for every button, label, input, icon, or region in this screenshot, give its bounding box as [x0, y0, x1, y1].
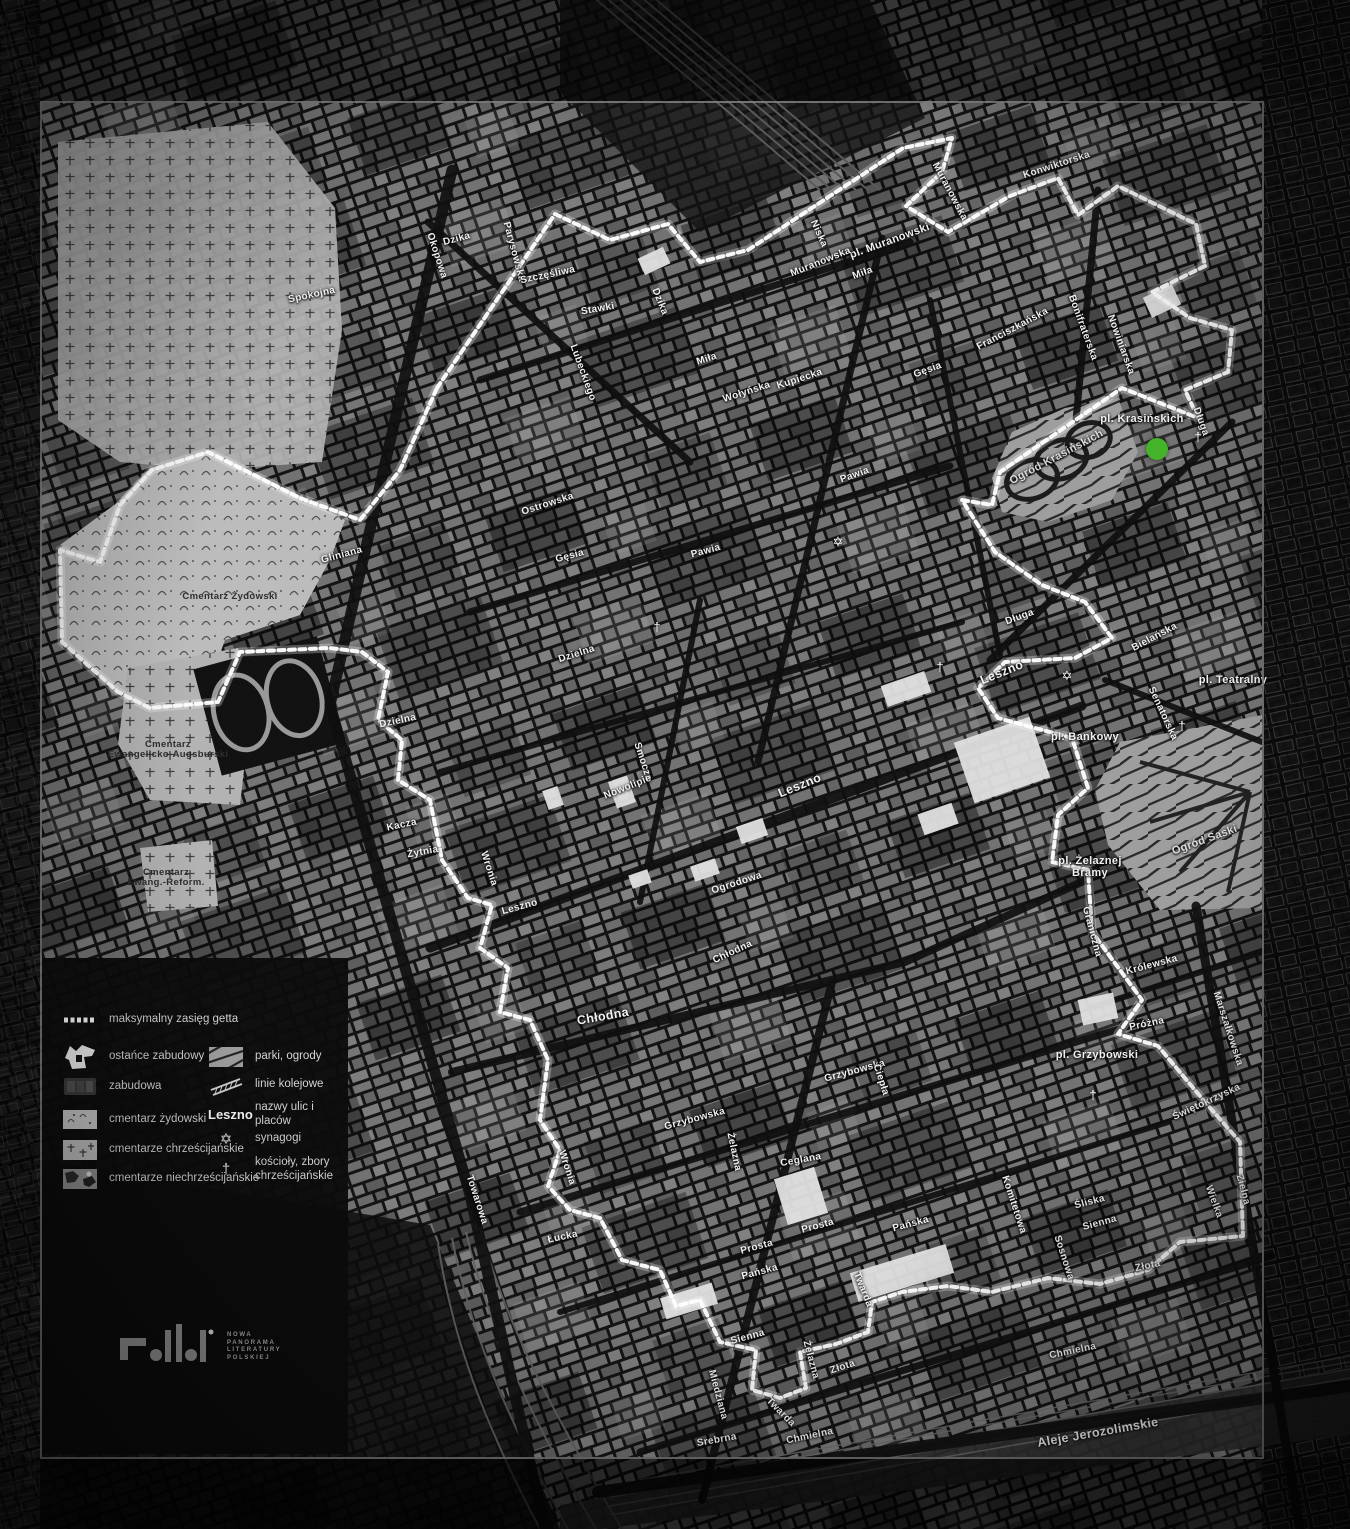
legend-item-railway-lines: linie kolejowe — [208, 1074, 323, 1096]
legend-label: maksymalny zasięg getta — [109, 1013, 238, 1027]
nplp-logo-glyphs — [118, 1324, 214, 1368]
logo-line: PANORAMA — [227, 1340, 281, 1348]
legend-label: linie kolejowe — [255, 1078, 323, 1092]
legend-label: synagogi — [255, 1132, 301, 1146]
legend-item-churches: † kościoły, zbory chrześcijańskie — [208, 1156, 359, 1183]
legend-item-street-names: Leszno nazwy ulic i placów — [208, 1101, 348, 1128]
legend-label: cmentarz żydowski — [109, 1113, 206, 1127]
legend-label: parki, ogrody — [255, 1050, 321, 1064]
map-viewport[interactable]: SpokojnaDzikaOkopowaParysowskaSzczęśliwa… — [0, 0, 1350, 1529]
legend-label: nazwy ulic i placów — [255, 1101, 348, 1128]
buildings-swatch — [62, 1078, 98, 1095]
legend-item-synagogues: ✡ synagogi — [208, 1130, 301, 1148]
legend-panel: maksymalny zasięg getta ostańce zabudowy… — [42, 958, 348, 1454]
legend-item-buildings: zabudowa — [62, 1078, 161, 1095]
church-cross-icon: † — [208, 1161, 244, 1178]
legend-label: kościoły, zbory chrześcijańskie — [255, 1156, 359, 1183]
nplp-logo: NOWA PANORAMA LITERATURY POLSKIEJ — [118, 1324, 281, 1368]
logo-line: LITERATURY — [227, 1347, 281, 1355]
street-name-sample: Leszno — [208, 1107, 244, 1122]
legend-item-parks-gardens: parki, ogrody — [208, 1047, 321, 1067]
legend-label: ostańce zabudowy — [109, 1050, 204, 1064]
jewish-cemetery-swatch — [62, 1110, 98, 1129]
railway-lines-swatch — [208, 1074, 244, 1096]
legend-label: zabudowa — [109, 1080, 161, 1094]
surviving-buildings-swatch — [62, 1042, 98, 1072]
logo-line: NOWA — [227, 1332, 281, 1340]
legend-item-surviving-buildings: ostańce zabudowy — [62, 1042, 204, 1072]
green-location-marker[interactable] — [1146, 438, 1168, 460]
ghetto-extent-swatch — [62, 1014, 98, 1026]
synagogue-star-icon: ✡ — [208, 1130, 244, 1148]
legend-item-jewish-cemetery: cmentarz żydowski — [62, 1110, 206, 1129]
nplp-logo-text: NOWA PANORAMA LITERATURY POLSKIEJ — [227, 1332, 281, 1362]
christian-cemeteries-swatch — [62, 1140, 98, 1160]
parks-gardens-swatch — [208, 1047, 244, 1067]
legend-item-ghetto-extent: maksymalny zasięg getta — [62, 1013, 238, 1027]
logo-line: POLSKIEJ — [227, 1355, 281, 1363]
non-christian-cemeteries-swatch — [62, 1169, 98, 1189]
